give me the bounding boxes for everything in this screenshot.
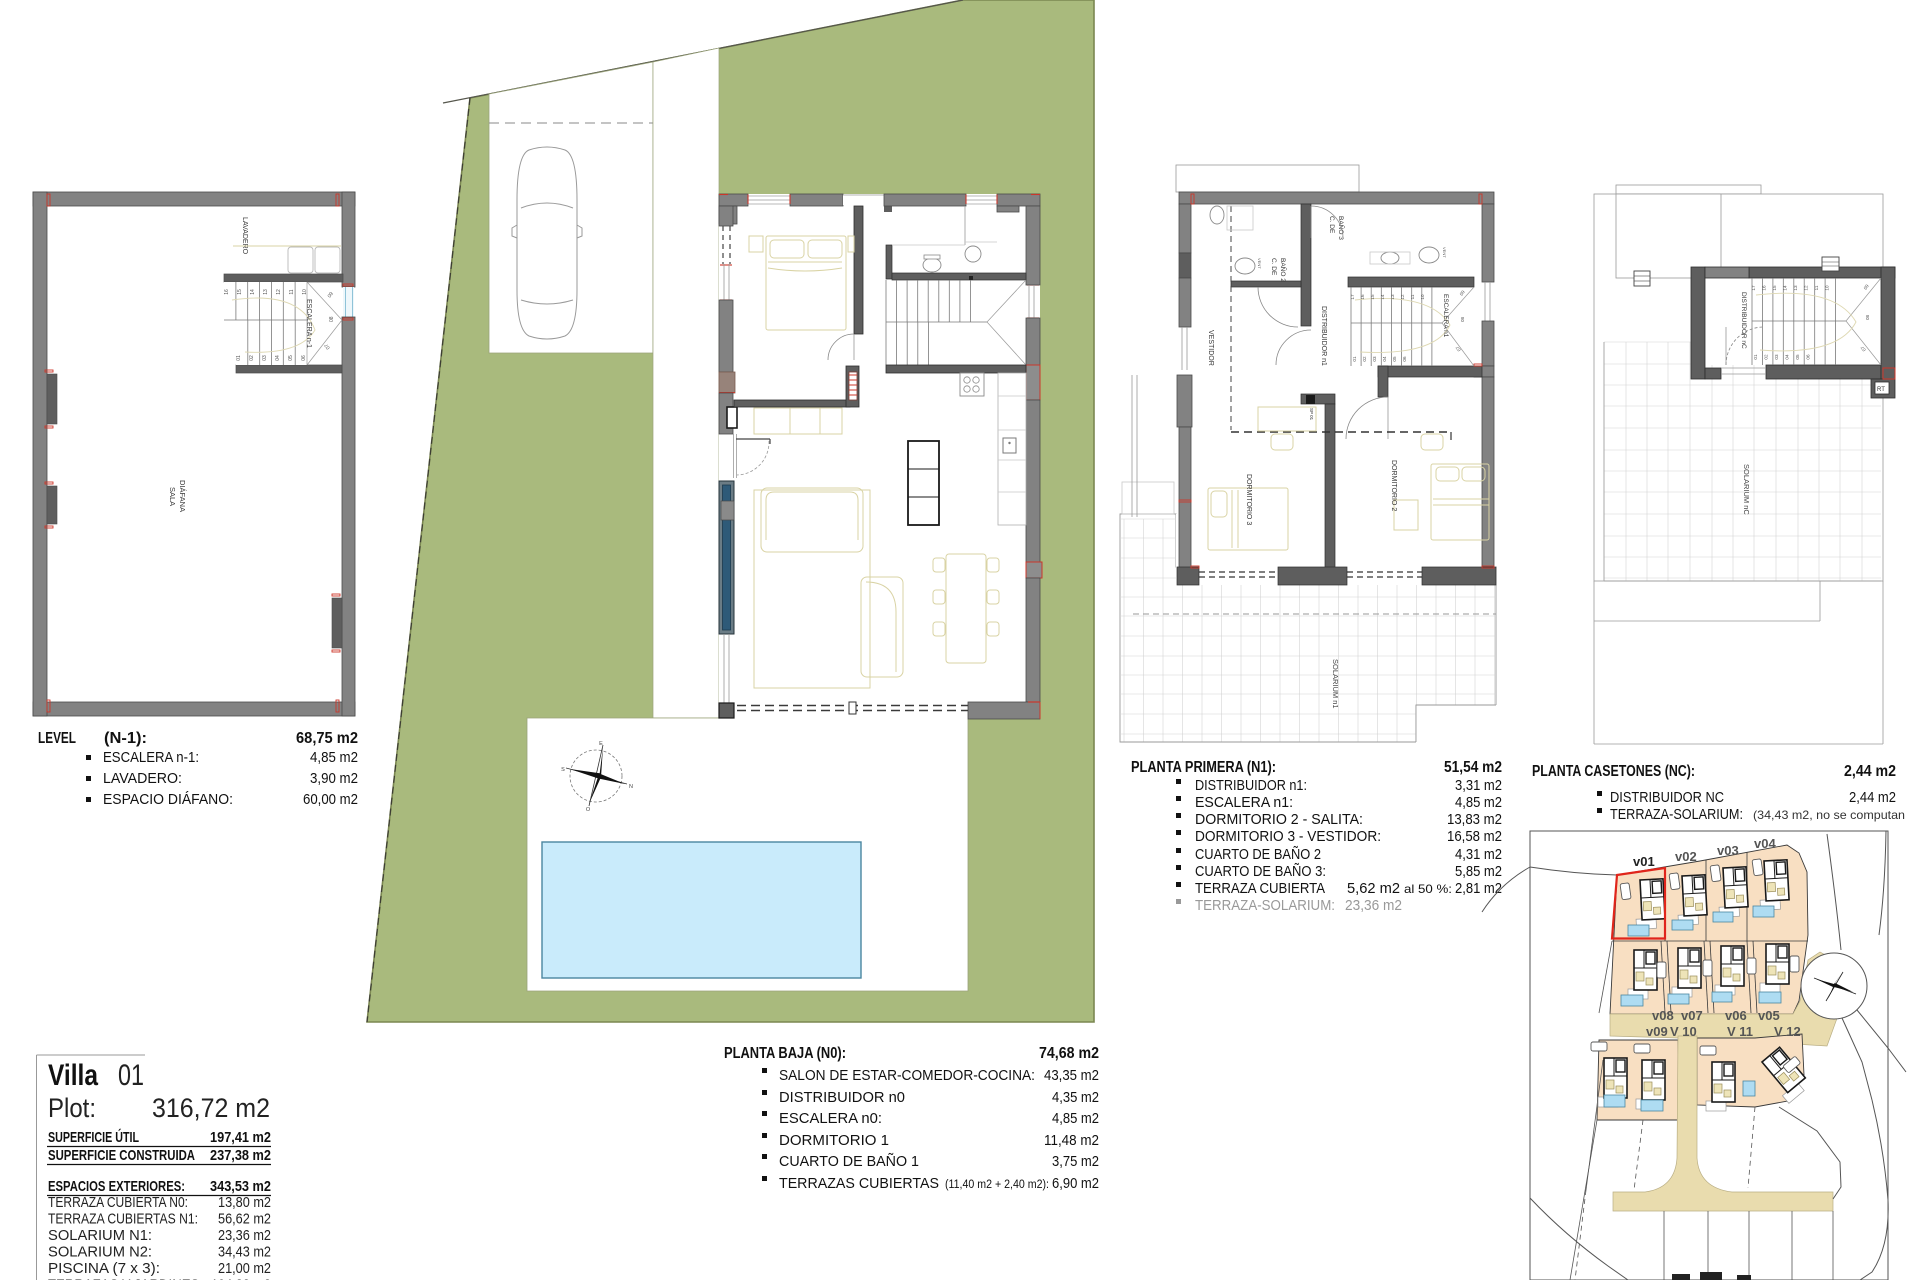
svg-text:06: 06	[1402, 356, 1407, 362]
svg-text:04: 04	[1382, 356, 1387, 362]
svg-text:16,58 m2: 16,58 m2	[1447, 828, 1502, 845]
svg-text:TERRAZAS Y JARDINES:: TERRAZAS Y JARDINES:	[48, 1277, 203, 1280]
svg-text:ESCALERA n1:: ESCALERA n1:	[1195, 794, 1293, 811]
svg-text:C. DE: C. DE	[1328, 216, 1335, 234]
svg-text:TERRAZA CUBIERTAS N1:: TERRAZA CUBIERTAS N1:	[48, 1211, 198, 1228]
svg-text:16: 16	[1360, 294, 1365, 300]
svg-text:04: 04	[1785, 354, 1790, 360]
svg-text:al 50 %:: al 50 %:	[1404, 882, 1452, 896]
svg-text:Plot:: Plot:	[48, 1093, 96, 1123]
svg-text:16: 16	[224, 289, 230, 295]
svg-text:v08: v08	[1652, 1008, 1674, 1023]
svg-text:Villa: Villa	[48, 1059, 98, 1092]
svg-text:23,36 m2: 23,36 m2	[218, 1227, 271, 1244]
svg-text:14: 14	[250, 289, 256, 295]
svg-text:O: O	[586, 807, 591, 813]
svg-text:4,85 m2: 4,85 m2	[1455, 794, 1502, 811]
svg-text:PISCINA (7 x 3):: PISCINA (7 x 3):	[48, 1260, 160, 1277]
svg-text:04: 04	[275, 355, 281, 361]
svg-text:ESPACIO DIÁFANO:: ESPACIO DIÁFANO:	[103, 791, 233, 808]
svg-text:56,62 m2: 56,62 m2	[218, 1211, 271, 1228]
svg-text:CUARTO DE BAÑO 3:: CUARTO DE BAÑO 3:	[1195, 863, 1326, 880]
svg-text:05: 05	[288, 355, 294, 361]
svg-text:v03: v03	[1717, 843, 1739, 858]
svg-text:03: 03	[1372, 356, 1377, 362]
svg-text:60,00 m2: 60,00 m2	[303, 791, 358, 808]
svg-text:BAÑO 2: BAÑO 2	[1279, 258, 1288, 282]
svg-text:DIÁFANA: DIÁFANA	[178, 480, 187, 512]
svg-text:03: 03	[262, 355, 268, 361]
svg-text:43,35 m2: 43,35 m2	[1044, 1067, 1099, 1084]
svg-text:15: 15	[237, 289, 243, 295]
svg-text:v06: v06	[1725, 1008, 1747, 1023]
svg-text:3,75 m2: 3,75 m2	[1052, 1153, 1099, 1170]
svg-text:DORMITORIO 3 - VESTIDOR:: DORMITORIO 3 - VESTIDOR:	[1195, 828, 1381, 845]
svg-text:RT: RT	[1877, 387, 1885, 393]
svg-text:23,36 m2: 23,36 m2	[1345, 897, 1402, 914]
svg-text:05: 05	[1392, 356, 1397, 362]
svg-text:v01: v01	[1633, 854, 1655, 869]
svg-text:DISTRIBUIDOR n1: DISTRIBUIDOR n1	[1320, 306, 1327, 366]
svg-text:12: 12	[276, 289, 282, 295]
svg-text:PLANTA CASETONES (NC):: PLANTA CASETONES (NC):	[1532, 763, 1695, 780]
svg-text:TERRAZAS CUBIERTAS: TERRAZAS CUBIERTAS	[779, 1175, 939, 1192]
svg-text:TERRAZA-SOLARIUM:: TERRAZA-SOLARIUM:	[1610, 806, 1743, 823]
svg-text:DORMITORIO 3: DORMITORIO 3	[1245, 474, 1252, 525]
svg-text:DISTRIBUIDOR n1:: DISTRIBUIDOR n1:	[1195, 777, 1307, 794]
svg-text:68,75 m2: 68,75 m2	[296, 730, 358, 747]
svg-text:74,68 m2: 74,68 m2	[1039, 1045, 1099, 1062]
svg-text:CUARTO DE BAÑO 2: CUARTO DE BAÑO 2	[1195, 846, 1321, 863]
svg-text:PLANTA BAJA (N0):: PLANTA BAJA (N0):	[724, 1045, 846, 1062]
svg-text:DISTRIBUIDOR n0: DISTRIBUIDOR n0	[779, 1089, 905, 1106]
svg-text:08: 08	[1865, 314, 1870, 320]
svg-text:S: S	[561, 767, 565, 773]
svg-text:17: 17	[1751, 285, 1756, 291]
svg-text:03: 03	[1774, 354, 1779, 360]
svg-text:12: 12	[1804, 285, 1809, 291]
svg-text:N: N	[629, 784, 633, 790]
svg-text:DORMITORIO 1: DORMITORIO 1	[779, 1132, 889, 1149]
svg-text:v07: v07	[1681, 1008, 1703, 1023]
svg-text:LEVEL: LEVEL	[38, 730, 76, 747]
svg-text:3,31 m2: 3,31 m2	[1455, 777, 1502, 794]
svg-text:3,90 m2: 3,90 m2	[310, 770, 358, 787]
svg-text:ESCALERA n-1:: ESCALERA n-1:	[103, 749, 199, 766]
svg-text:01: 01	[236, 355, 242, 361]
svg-text:ESPACIOS EXTERIORES:: ESPACIOS EXTERIORES:	[48, 1178, 185, 1195]
svg-text:SOLARIUM n1: SOLARIUM n1	[1331, 659, 1340, 709]
svg-text:17: 17	[1350, 294, 1355, 300]
svg-text:316,72 m2: 316,72 m2	[152, 1093, 270, 1123]
svg-text:(34,43 m2, no se computan: (34,43 m2, no se computan	[1753, 808, 1905, 822]
svg-text:(11,40 m2 + 2,40 m2):: (11,40 m2 + 2,40 m2):	[945, 1179, 1049, 1191]
svg-text:13: 13	[1793, 285, 1798, 291]
svg-text:237,38 m2: 237,38 m2	[210, 1147, 271, 1164]
svg-text:SOLARIUM N1:: SOLARIUM N1:	[48, 1227, 152, 1244]
svg-text:TERRAZA CUBIERTA: TERRAZA CUBIERTA	[1195, 880, 1325, 897]
svg-text:02: 02	[1764, 354, 1769, 360]
svg-text:SOLARIUM N2:: SOLARIUM N2:	[48, 1244, 152, 1261]
svg-text:01: 01	[118, 1059, 144, 1092]
svg-text:13: 13	[263, 289, 269, 295]
svg-text:DORMITORIO 2 - SALITA:: DORMITORIO 2 - SALITA:	[1195, 811, 1363, 828]
svg-text:LAVADERO:: LAVADERO:	[103, 770, 182, 787]
svg-text:197,41 m2: 197,41 m2	[210, 1129, 271, 1146]
svg-text:4,31 m2: 4,31 m2	[1455, 846, 1502, 863]
svg-text:13: 13	[1390, 294, 1395, 300]
svg-text:DORMITORIO 2: DORMITORIO 2	[1390, 460, 1397, 511]
svg-text:11: 11	[289, 289, 295, 294]
svg-text:11: 11	[1814, 285, 1819, 290]
svg-text:TERRAZA CUBIERTA N0:: TERRAZA CUBIERTA N0:	[48, 1194, 188, 1211]
svg-text:LAVADERO: LAVADERO	[241, 217, 248, 255]
svg-text:15: 15	[1772, 285, 1777, 291]
svg-text:343,53 m2: 343,53 m2	[210, 1178, 271, 1195]
svg-text:16: 16	[1762, 285, 1767, 291]
svg-text:14: 14	[1380, 294, 1385, 300]
svg-text:DISTRIBUIDOR nC: DISTRIBUIDOR nC	[1740, 292, 1747, 349]
svg-text:v09: v09	[1646, 1024, 1668, 1039]
svg-text:4,35 m2: 4,35 m2	[1052, 1089, 1099, 1106]
svg-text:05: 05	[1795, 354, 1800, 360]
svg-text:V 10: V 10	[1670, 1024, 1697, 1039]
svg-text:SALON DE ESTAR-COMEDOR-COCINA:: SALON DE ESTAR-COMEDOR-COCINA:	[779, 1067, 1035, 1084]
svg-text:34,43 m2: 34,43 m2	[218, 1244, 271, 1261]
svg-text:11,48 m2: 11,48 m2	[1044, 1132, 1099, 1149]
svg-text:SUPERFICIE CONSTRUIDA: SUPERFICIE CONSTRUIDA	[48, 1147, 195, 1164]
svg-text:ESCALERA n-1: ESCALERA n-1	[305, 299, 312, 348]
svg-text:08: 08	[1460, 316, 1465, 322]
svg-text:02: 02	[1362, 356, 1367, 362]
svg-text:14: 14	[1783, 285, 1788, 291]
svg-text:2,44 m2: 2,44 m2	[1849, 789, 1896, 806]
svg-text:DISTRIBUIDOR NC: DISTRIBUIDOR NC	[1610, 789, 1724, 806]
svg-text:21,00 m2: 21,00 m2	[218, 1260, 271, 1277]
svg-text:11: 11	[1410, 294, 1415, 299]
svg-text:SUPERFICIE ÚTIL: SUPERFICIE ÚTIL	[48, 1128, 139, 1146]
svg-text:10: 10	[1825, 285, 1830, 291]
svg-text:51,54 m2: 51,54 m2	[1444, 759, 1502, 776]
svg-text:VENT: VENT	[1442, 247, 1447, 258]
svg-text:VENT: VENT	[1257, 258, 1262, 269]
svg-text:v05: v05	[1758, 1008, 1780, 1023]
svg-text:ESCALERA n1: ESCALERA n1	[1442, 294, 1449, 338]
svg-text:VESTIDOR: VESTIDOR	[1207, 330, 1214, 366]
svg-text:10: 10	[302, 289, 308, 295]
svg-text:TERRAZA-SOLARIUM:: TERRAZA-SOLARIUM:	[1195, 897, 1335, 914]
svg-text:12: 12	[1400, 294, 1405, 300]
svg-text:5,85 m2: 5,85 m2	[1455, 863, 1502, 880]
svg-text:PLANTA PRIMERA (N1):: PLANTA PRIMERA (N1):	[1131, 759, 1276, 776]
svg-text:15: 15	[1370, 294, 1375, 300]
svg-text:C. DE: C. DE	[1270, 258, 1277, 276]
svg-text:06: 06	[1806, 354, 1811, 360]
svg-text:SALA: SALA	[168, 487, 177, 506]
svg-text:06: 06	[301, 355, 307, 361]
svg-text:6,90 m2: 6,90 m2	[1052, 1175, 1099, 1192]
svg-text:ESCALERA n0:: ESCALERA n0:	[779, 1110, 882, 1127]
svg-text:CUARTO DE BAÑO 1: CUARTO DE BAÑO 1	[779, 1153, 919, 1170]
svg-text:02: 02	[249, 355, 255, 361]
svg-text:08: 08	[329, 316, 335, 322]
svg-text:V 12: V 12	[1774, 1024, 1801, 1039]
svg-text:(N-1):: (N-1):	[104, 730, 147, 747]
svg-text:194,32 m2: 194,32 m2	[211, 1277, 271, 1280]
svg-text:4,85 m2: 4,85 m2	[1052, 1110, 1099, 1127]
svg-text:v02: v02	[1675, 849, 1697, 864]
svg-text:13,80 m2: 13,80 m2	[218, 1194, 271, 1211]
svg-text:SOLARIUM nC: SOLARIUM nC	[1742, 464, 1751, 515]
svg-text:13,83 m2: 13,83 m2	[1447, 811, 1502, 828]
svg-text:4,85 m2: 4,85 m2	[310, 749, 358, 766]
svg-text:V 11: V 11	[1727, 1024, 1753, 1039]
svg-text:SP 01: SP 01	[1309, 408, 1314, 421]
svg-text:01: 01	[1352, 356, 1357, 362]
svg-text:2,44 m2: 2,44 m2	[1844, 763, 1896, 780]
svg-text:5,62 m2: 5,62 m2	[1347, 880, 1400, 897]
svg-text:v04: v04	[1754, 836, 1776, 851]
svg-text:10: 10	[1420, 294, 1425, 300]
svg-text:E: E	[599, 741, 603, 747]
svg-text:01: 01	[1753, 354, 1758, 360]
